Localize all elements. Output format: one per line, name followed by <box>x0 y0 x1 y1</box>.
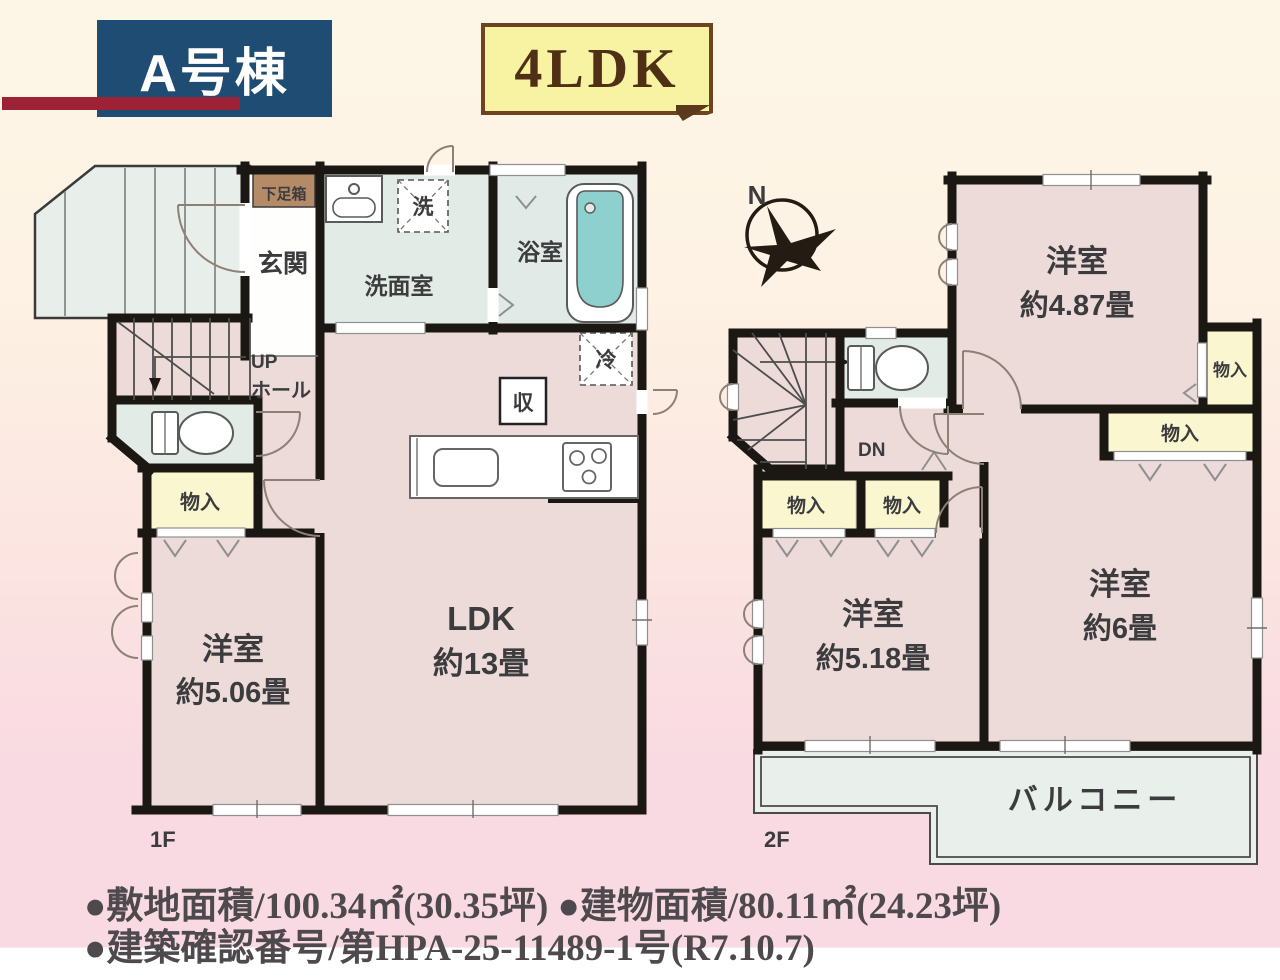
north-compass-icon <box>744 200 836 287</box>
building-permit-line: ●建築確認番号/第HPA-25-11489-1号(R7.10.7) <box>84 928 1001 970</box>
label-western-room-2f-2-size: 約5.18畳 <box>816 641 930 675</box>
bathtub-icon <box>567 184 633 322</box>
label-western-room-1f-size: 約5.06畳 <box>176 675 290 709</box>
label-western-room-2f-2: 洋室 <box>842 597 904 632</box>
label-western-room-2f-3-size: 約6畳 <box>1083 611 1157 645</box>
window <box>947 224 958 250</box>
label-entrance: 玄関 <box>258 249 308 278</box>
porch <box>35 166 250 318</box>
label-washroom: 洗面室 <box>365 273 434 299</box>
toilet-fixture-1f <box>152 412 233 454</box>
label-balcony: バルコニー <box>1008 784 1182 817</box>
layout-badge-label: 4LDK <box>514 37 679 101</box>
floor1-plan: 下足箱 玄関 洗面室 洗 浴室 UP ホール 物入 冷 収 洋室 約5.06畳 … <box>35 146 677 852</box>
window <box>490 165 565 176</box>
toilet-fixture-2f <box>848 346 928 390</box>
label-ldk-size: 約13畳 <box>433 646 529 681</box>
floor2-caption: 2F <box>764 827 790 852</box>
floor2-plan: N 洋室 約4.87畳 物入 物入 物入 物入 DN 洋室 約5.18畳 洋室 … <box>720 170 1267 864</box>
building-badge-label: A号棟 <box>139 31 290 106</box>
label-western-room-2f-1: 洋室 <box>1046 244 1108 279</box>
sliding-door <box>336 323 425 334</box>
label-up: UP <box>251 352 278 373</box>
floor-plan-canvas: 下足箱 玄関 洗面室 洗 浴室 UP ホール 物入 冷 収 洋室 約5.06畳 … <box>0 0 1280 980</box>
closet-sliding-door <box>1198 343 1207 397</box>
label-closet-wide: 物入 <box>1161 422 1199 445</box>
window <box>142 593 153 622</box>
property-info: ●敷地面積/100.34㎡(30.35坪) ●建物面積/80.11㎡(24.23… <box>84 886 1001 970</box>
label-western-room-1f: 洋室 <box>202 632 264 667</box>
site-area-line: ●敷地面積/100.34㎡(30.35坪) ●建物面積/80.11㎡(24.23… <box>84 886 1001 928</box>
vent-window-arc <box>115 553 138 599</box>
layout-badge: 4LDK <box>481 23 713 115</box>
vent-window-arc <box>112 606 138 658</box>
label-shoe-box: 下足箱 <box>261 185 306 203</box>
window <box>866 328 896 339</box>
door-arc <box>653 390 677 414</box>
closet-sliding-door <box>1114 452 1246 461</box>
closet-sliding-door <box>773 529 845 538</box>
sink-fixture <box>326 176 382 222</box>
label-bathroom: 浴室 <box>517 239 563 265</box>
label-western-room-2f-3: 洋室 <box>1089 567 1151 602</box>
label-washer: 洗 <box>413 196 434 219</box>
label-closet-b: 物入 <box>883 494 921 517</box>
window <box>947 259 958 285</box>
window <box>753 600 764 628</box>
flyer-page: 下足箱 玄関 洗面室 洗 浴室 UP ホール 物入 冷 収 洋室 約5.06畳 … <box>0 0 1280 980</box>
kitchen-counter <box>410 436 638 498</box>
window <box>637 600 648 645</box>
label-closet-side: 物入 <box>1213 360 1247 380</box>
room-ldk <box>320 328 642 810</box>
label-down: DN <box>858 440 885 461</box>
building-badge-underline <box>2 97 240 110</box>
floor1-caption: 1F <box>150 827 176 852</box>
closet-sliding-door <box>157 528 245 537</box>
label-closet-a: 物入 <box>787 494 825 517</box>
label-fridge: 冷 <box>596 348 617 372</box>
window <box>728 384 739 410</box>
window <box>637 288 648 330</box>
label-closet-1f: 物入 <box>180 490 220 514</box>
label-western-room-2f-1-size: 約4.87畳 <box>1020 288 1134 322</box>
room-western-1f <box>147 533 320 810</box>
label-storage: 収 <box>513 392 535 415</box>
window <box>753 636 764 664</box>
label-north: N <box>748 180 767 210</box>
window <box>142 636 153 660</box>
label-ldk: LDK <box>447 600 515 637</box>
label-hall: ホール <box>251 380 311 402</box>
room-western-2f-2 <box>758 533 984 746</box>
closet-sliding-door <box>875 529 935 538</box>
